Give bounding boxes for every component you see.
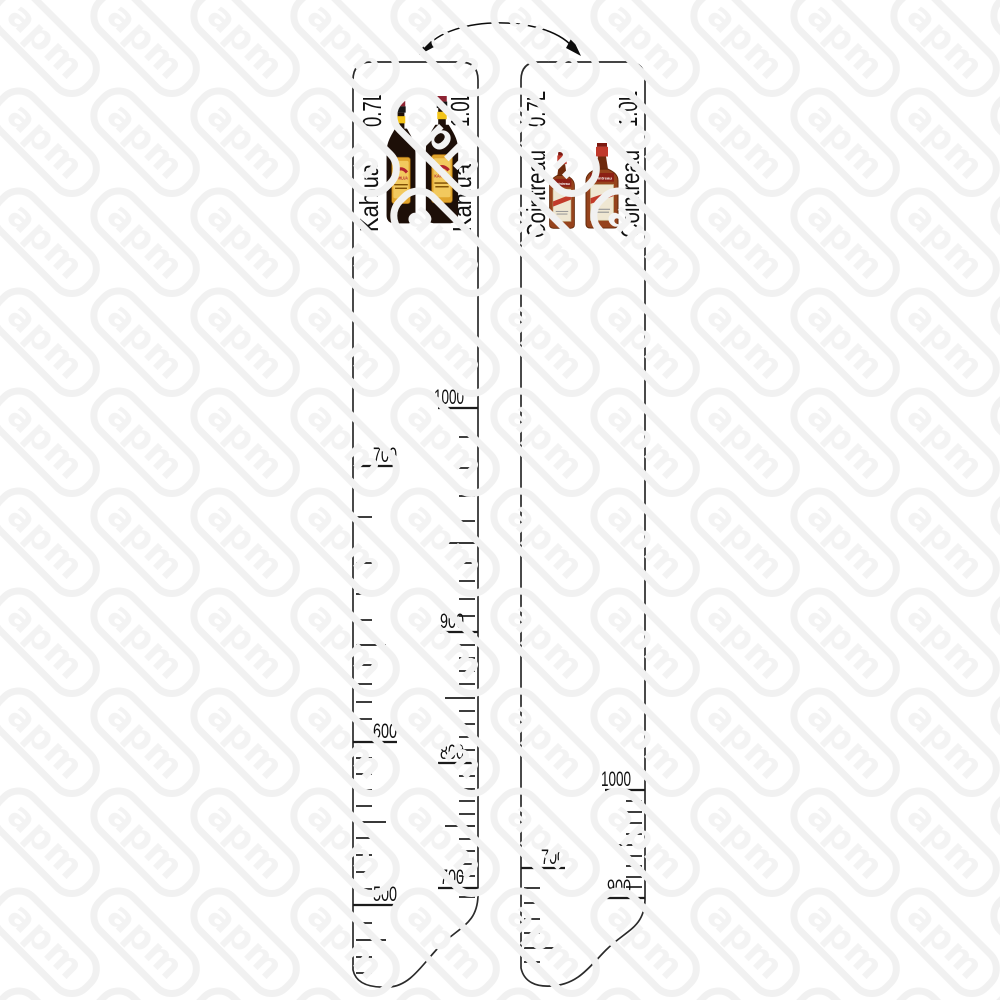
bottle-part [558, 152, 566, 155]
swap-arrow [419, 23, 581, 56]
scale-number: 1000 [601, 768, 631, 791]
cointreau-07-brand-label: Cointreau [521, 150, 551, 238]
scale-number: 900 [607, 876, 631, 899]
bottle-part [397, 116, 406, 123]
ruler-graphic: 0.7L Kahlua 1.0L Kahlua 700600500 100090… [0, 0, 1000, 1000]
cointreau-10-brand-label: Cointreau [615, 150, 645, 238]
bottle-part [437, 112, 447, 119]
bottle-part [395, 188, 407, 189]
bottle-part [397, 101, 406, 106]
bottle-part [396, 106, 405, 112]
kahlua-07-volume-label: 0.7L [357, 91, 387, 127]
bottle-label-text: KAHLUA [394, 175, 408, 180]
kahlua-07-brand-label: Kahlua [354, 164, 384, 232]
bottle-part [596, 147, 608, 157]
bottle-part [434, 182, 449, 183]
scale-number: 600 [373, 720, 397, 743]
swap-arrow-curve [425, 23, 575, 50]
bottle-label-text: Cointreau [554, 182, 570, 186]
bottle-part [435, 186, 448, 187]
bottle-part [557, 164, 566, 175]
scale-number: 500 [373, 883, 397, 906]
bottle-part [437, 102, 447, 109]
bottle-part [557, 155, 566, 164]
scale-number: 900 [440, 610, 464, 633]
arrowhead-left-icon [419, 36, 434, 55]
cointreau-10-volume-label: 1.0L [613, 91, 643, 127]
scale-number: 700 [541, 846, 565, 869]
bottle-label-text: Cointreau [592, 176, 613, 181]
bottle-part [594, 209, 610, 210]
bottle-label-text: KAHLUA [434, 174, 450, 179]
arrowhead-right-icon [566, 37, 581, 56]
scale-number: 800 [440, 741, 464, 764]
kahlua-10-volume-label: 1.0L [445, 91, 475, 127]
scale-number: 700 [373, 444, 397, 467]
bottle-part [557, 214, 568, 215]
cointreau-07-volume-label: 0.7L [521, 91, 551, 127]
bottle-part [556, 211, 568, 212]
product-image: 0.7L Kahlua 1.0L Kahlua 700600500 100090… [0, 0, 1000, 1000]
bottle-part [596, 157, 608, 170]
scale-number: 700 [440, 866, 464, 889]
cointreau-ruler: 0.7L Cointreau 1.0L Cointreau 700 100090… [521, 62, 645, 986]
bottle-part [437, 96, 447, 102]
bottle-part [595, 212, 609, 213]
kahlua-ruler: 0.7L Kahlua 1.0L Kahlua 700600500 100090… [353, 62, 478, 987]
bottle-part [597, 143, 607, 147]
scale-number: 1000 [434, 386, 464, 409]
bottle-part [394, 184, 408, 185]
